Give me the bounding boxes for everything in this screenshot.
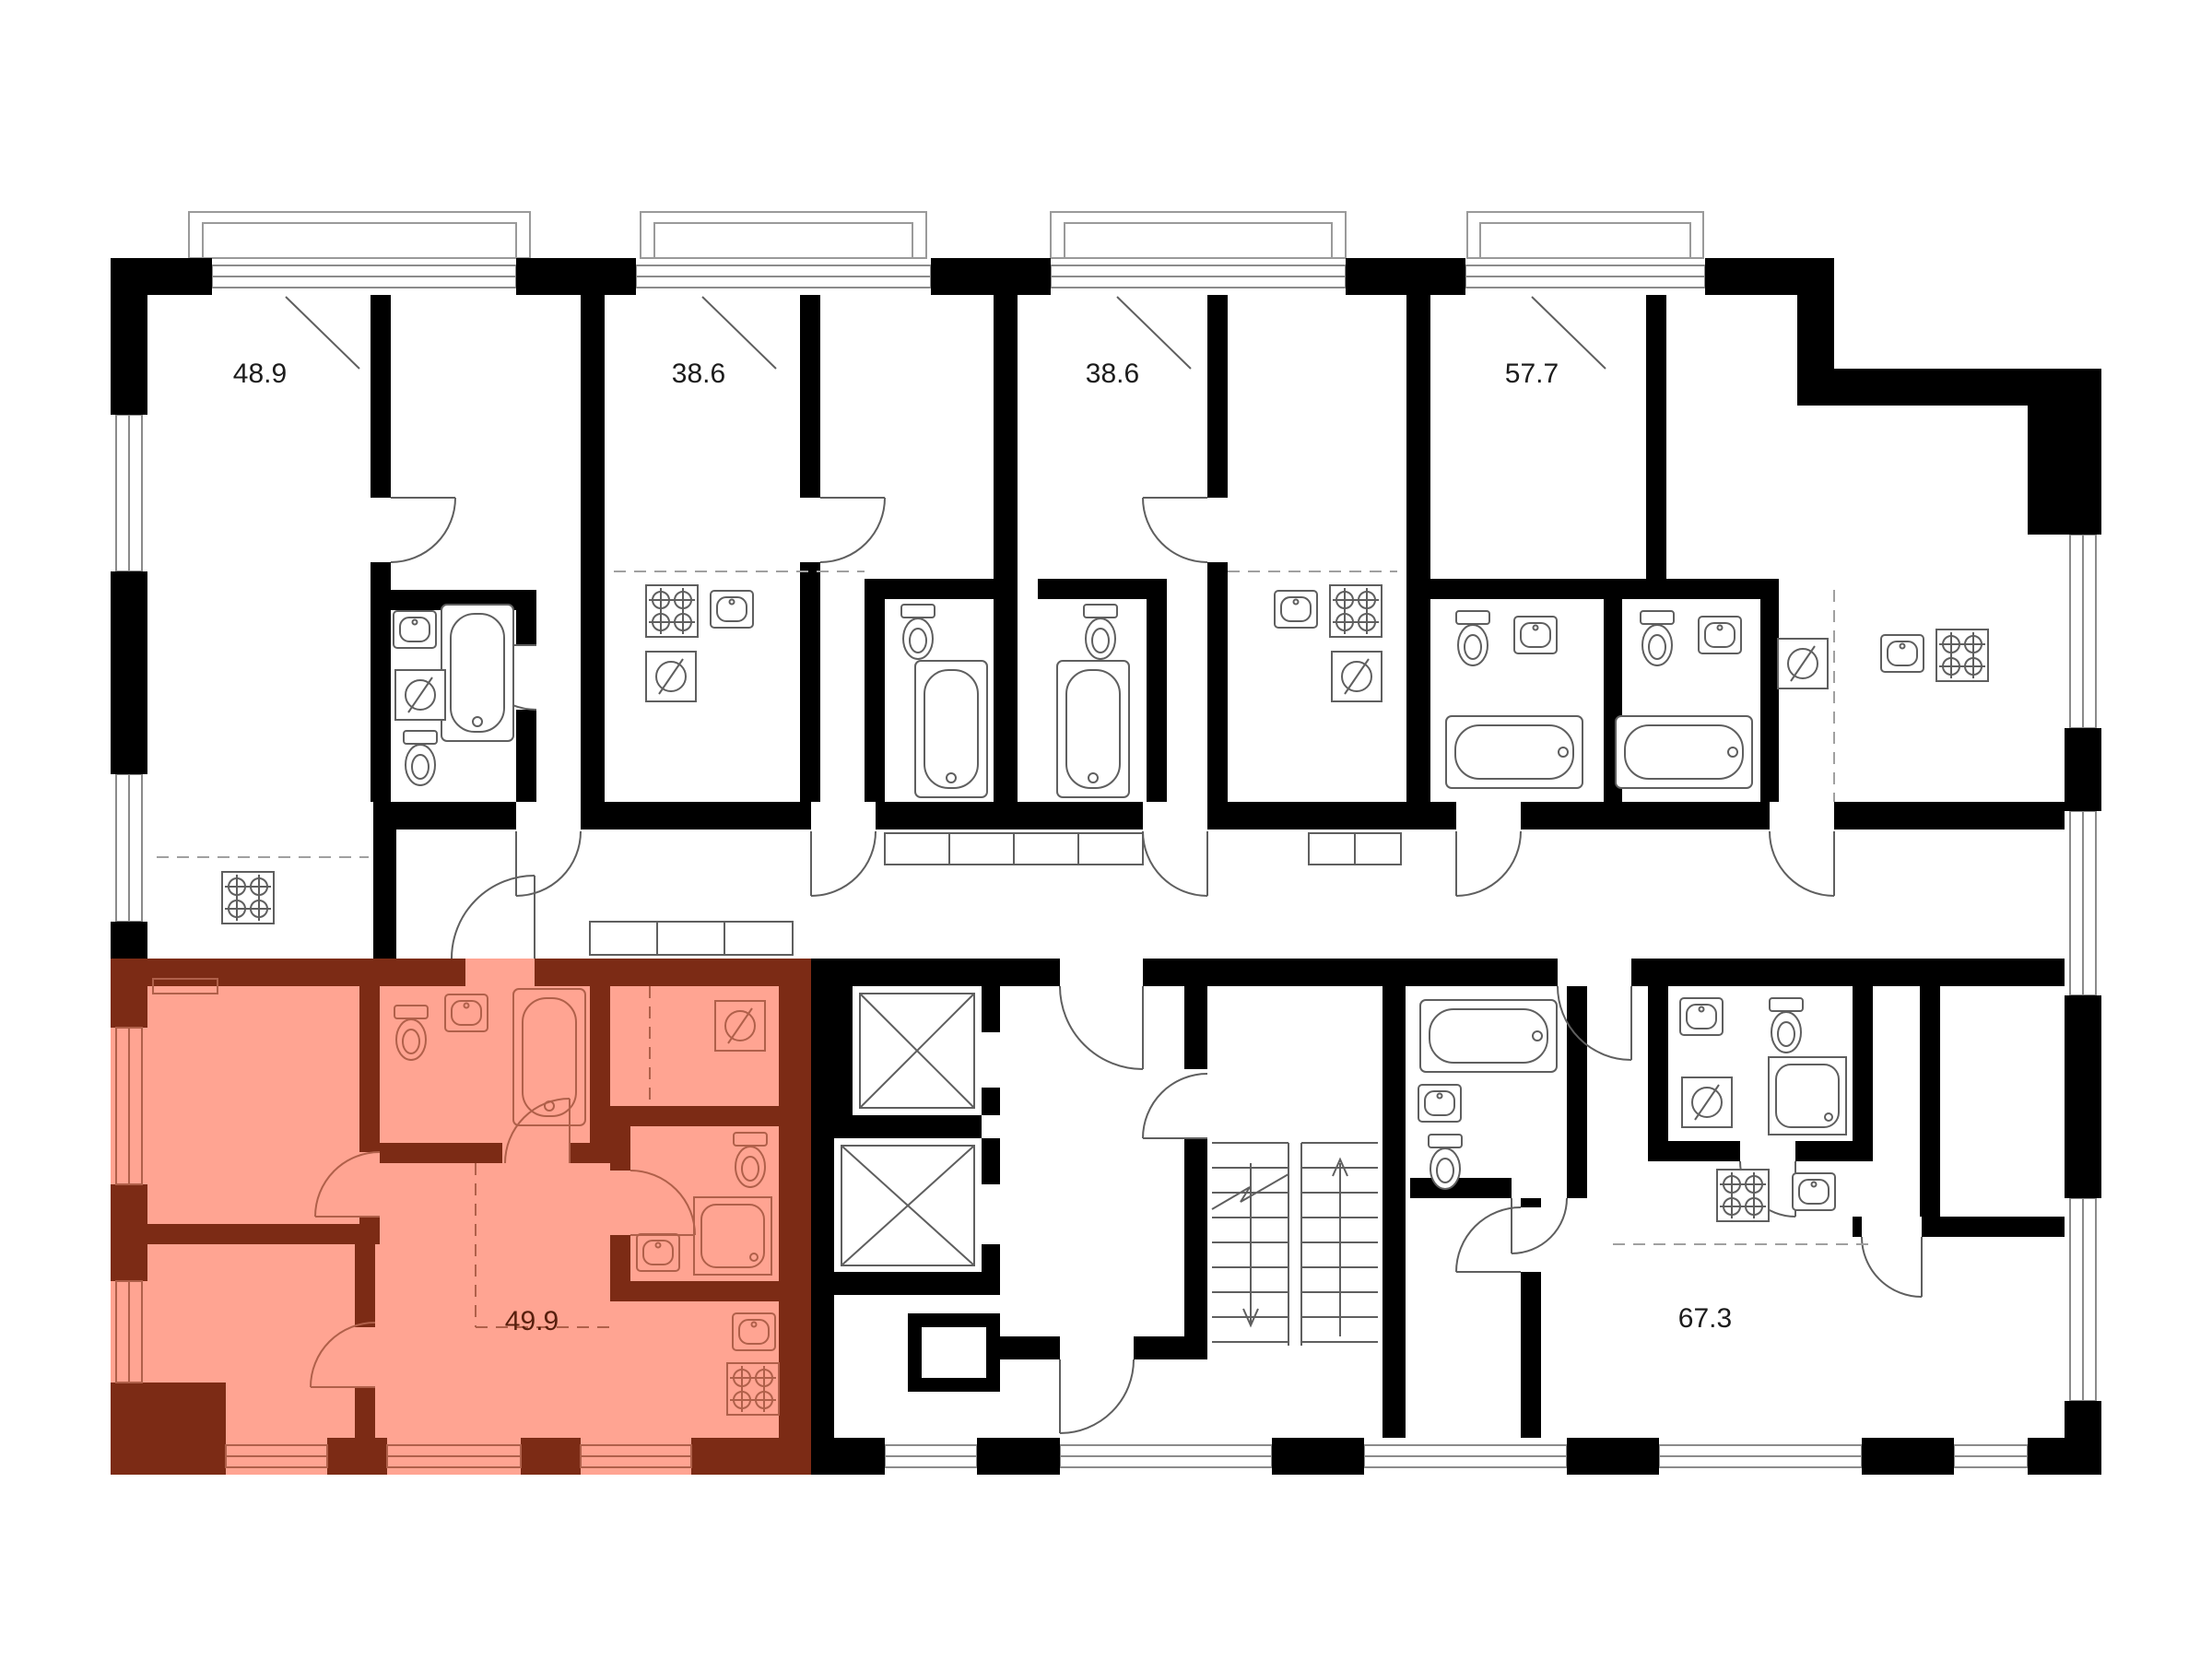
balcony-icon xyxy=(189,212,530,258)
floor-plan-canvas: 48.9 38.6 38.6 57.7 49.9 67.3 xyxy=(0,0,2212,1659)
stair-down-arrow xyxy=(1243,1163,1258,1325)
duct-room xyxy=(922,1327,986,1378)
apartment-region-48-9[interactable] xyxy=(147,295,581,954)
apartment-region-38-6-a[interactable] xyxy=(605,295,994,802)
apartment-region-49-9-highlighted[interactable] xyxy=(111,959,811,1475)
wardrobe-icon xyxy=(590,833,1401,955)
apartment-region-67-3[interactable] xyxy=(1410,986,2065,1438)
stair-up-arrow xyxy=(1333,1159,1347,1336)
balcony-icon xyxy=(1467,212,1703,258)
elevator-icon xyxy=(860,994,974,1108)
balconies xyxy=(189,212,1703,258)
apartment-hotspots xyxy=(111,295,2065,1475)
apartment-region-38-6-b[interactable] xyxy=(1018,295,1406,802)
stairs-icon xyxy=(1212,1143,1378,1346)
balcony-icon xyxy=(1051,212,1346,258)
floor-plan-page: 48.9 38.6 38.6 57.7 49.9 67.3 xyxy=(0,0,2212,1659)
apartment-region-57-7[interactable] xyxy=(1430,295,2065,802)
balcony-icon xyxy=(641,212,926,258)
elevator-icon xyxy=(841,1146,974,1265)
